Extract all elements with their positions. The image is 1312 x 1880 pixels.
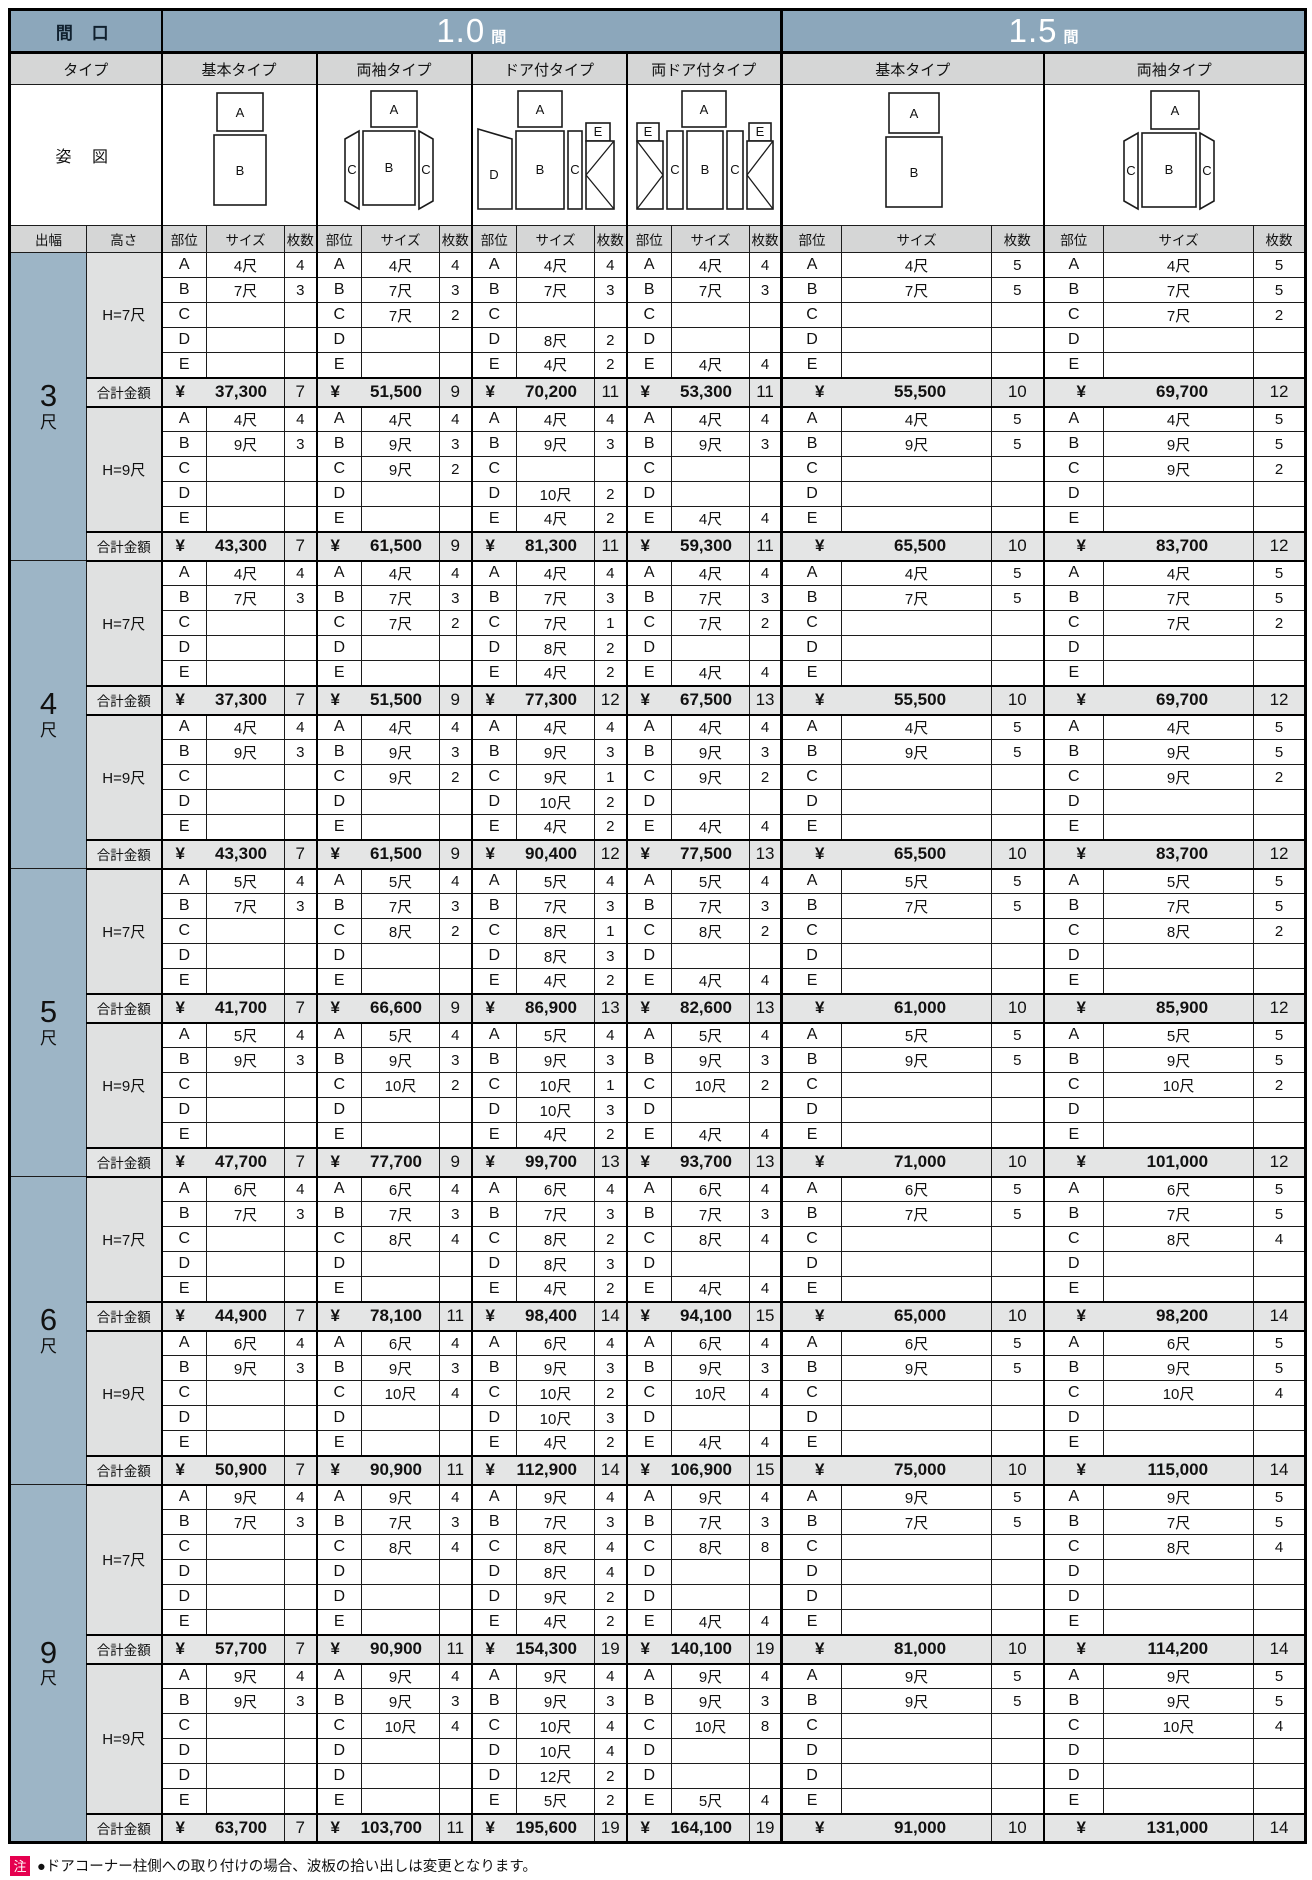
count-value-empty (750, 944, 782, 969)
count-value-empty (992, 611, 1044, 636)
count-value-empty (992, 661, 1044, 686)
svg-text:B: B (909, 165, 918, 180)
size-value: 9尺 (362, 1689, 440, 1714)
count-value: 4 (595, 1535, 627, 1560)
yen-sign: ¥ (486, 1152, 495, 1172)
size-value: 4尺 (517, 1610, 595, 1635)
part-letter: A (782, 1485, 842, 1510)
size-value-empty (1104, 1585, 1254, 1610)
total-amount-value: 90,900 (370, 1639, 422, 1659)
size-value-empty (842, 457, 992, 482)
part-letter: A (472, 1485, 517, 1510)
count-value-empty (285, 919, 317, 944)
part-letter: A (782, 561, 842, 586)
count-value: 3 (440, 1202, 472, 1227)
depth-value: 9 (11, 1637, 86, 1670)
part-letter: E (627, 1431, 672, 1456)
count-value: 4 (750, 661, 782, 686)
total-amount-value: 101,000 (1147, 1152, 1208, 1172)
part-letter: C (1044, 1381, 1104, 1406)
part-letter: C (782, 919, 842, 944)
part-letter: D (162, 1739, 207, 1764)
size-value-empty (362, 636, 440, 661)
part-letter: D (782, 944, 842, 969)
total-count: 11 (750, 378, 782, 407)
count-value-empty (992, 815, 1044, 840)
size-value-empty (672, 482, 750, 507)
yen-sign: ¥ (176, 1306, 185, 1326)
total-amount: ¥50,900 (162, 1456, 285, 1485)
total-amount-value: 65,500 (894, 536, 946, 556)
count-value: 2 (1254, 765, 1306, 790)
part-letter: B (162, 1356, 207, 1381)
total-amount-value: 55,500 (894, 690, 946, 710)
part-row: DDD8尺2DDD (10, 328, 1306, 353)
total-amount-value: 82,600 (680, 998, 732, 1018)
count-value: 4 (750, 1381, 782, 1406)
count-value: 5 (1254, 1689, 1306, 1714)
count-value: 3 (285, 1689, 317, 1714)
size-value: 6尺 (517, 1177, 595, 1202)
count-value: 5 (1254, 1664, 1306, 1689)
part-letter: A (627, 1664, 672, 1689)
yen-sign: ¥ (176, 1639, 185, 1659)
part-letter: C (627, 1535, 672, 1560)
size-value: 9尺 (207, 1356, 285, 1381)
yen-sign: ¥ (815, 1639, 824, 1659)
size-value: 8尺 (362, 1227, 440, 1252)
part-row: B9尺3B9尺3B9尺3B9尺3B9尺5B9尺5 (10, 1356, 1306, 1381)
count-value-empty (285, 507, 317, 532)
count-value-empty (1254, 507, 1306, 532)
count-value-empty (992, 328, 1044, 353)
part-letter: A (317, 561, 362, 586)
type-header-label: タイプ (10, 53, 162, 85)
svg-text:D: D (489, 167, 498, 182)
total-count: 19 (750, 1814, 782, 1843)
count-value: 3 (285, 1356, 317, 1381)
part-letter: E (782, 815, 842, 840)
total-amount: ¥37,300 (162, 378, 285, 407)
part-letter: E (317, 1277, 362, 1302)
count-value: 4 (595, 1560, 627, 1585)
part-letter: D (317, 482, 362, 507)
count-value-empty (750, 1252, 782, 1277)
part-letter: E (162, 353, 207, 378)
count-value-empty (992, 1252, 1044, 1277)
size-value: 6尺 (362, 1331, 440, 1356)
part-letter: E (162, 507, 207, 532)
size-value: 9尺 (672, 740, 750, 765)
total-count: 13 (750, 1148, 782, 1177)
size-value-empty (362, 969, 440, 994)
size-value: 9尺 (207, 1048, 285, 1073)
part-letter: A (782, 253, 842, 278)
count-value: 3 (285, 432, 317, 457)
count-value-empty (750, 303, 782, 328)
size-value-empty (842, 1764, 992, 1789)
part-letter: B (472, 1048, 517, 1073)
count-value-empty (1254, 1098, 1306, 1123)
part-letter: B (162, 740, 207, 765)
count-value: 1 (595, 1073, 627, 1098)
part-letter: B (317, 586, 362, 611)
count-value: 2 (1254, 457, 1306, 482)
size-value-empty (207, 1123, 285, 1148)
yen-sign: ¥ (176, 382, 185, 402)
part-row: B9尺3B9尺3B9尺3B9尺3B9尺5B9尺5 (10, 740, 1306, 765)
depth-unit: 尺 (11, 1669, 86, 1689)
count-value: 2 (595, 1431, 627, 1456)
size-value: 10尺 (1104, 1381, 1254, 1406)
size-value-empty (842, 1073, 992, 1098)
count-value: 3 (595, 1406, 627, 1431)
size-value: 10尺 (1104, 1714, 1254, 1739)
yen-sign: ¥ (331, 1639, 340, 1659)
count-value: 5 (992, 1485, 1044, 1510)
part-row: H=9尺A4尺4A4尺4A4尺4A4尺4A4尺5A4尺5 (10, 407, 1306, 432)
count-value: 2 (750, 765, 782, 790)
yen-sign: ¥ (641, 1818, 650, 1838)
part-letter: C (317, 457, 362, 482)
sugata-header-label: 姿 図 (10, 85, 162, 226)
size-value-empty (207, 790, 285, 815)
part-letter: D (782, 1406, 842, 1431)
size-value: 7尺 (672, 611, 750, 636)
part-row: CC9尺2CCCC9尺2 (10, 457, 1306, 482)
part-letter: A (162, 1485, 207, 1510)
size-value-empty (207, 1585, 285, 1610)
part-row: EEE5尺2E5尺4EE (10, 1789, 1306, 1814)
count-value-empty (1254, 1610, 1306, 1635)
count-value-empty (750, 1764, 782, 1789)
yen-sign: ¥ (331, 1460, 340, 1480)
count-value-empty (992, 1098, 1044, 1123)
size-value: 4尺 (517, 715, 595, 740)
part-letter: B (162, 894, 207, 919)
total-row: 合計金額¥43,3007¥61,5009¥90,40012¥77,50013¥6… (10, 840, 1306, 869)
count-value: 2 (1254, 611, 1306, 636)
yen-sign: ¥ (815, 998, 824, 1018)
part-letter: B (782, 1689, 842, 1714)
total-amount-value: 44,900 (215, 1306, 267, 1326)
size-value: 7尺 (1104, 586, 1254, 611)
height-label: H=9尺 (87, 407, 162, 532)
size-value: 8尺 (362, 919, 440, 944)
size-value: 7尺 (1104, 1202, 1254, 1227)
height-label: H=7尺 (87, 1485, 162, 1635)
part-letter: D (782, 1252, 842, 1277)
count-value-empty (992, 1073, 1044, 1098)
count-value-empty (750, 1406, 782, 1431)
yen-sign: ¥ (331, 1152, 340, 1172)
yen-sign: ¥ (176, 998, 185, 1018)
size-value: 7尺 (517, 611, 595, 636)
size-value: 4尺 (362, 561, 440, 586)
count-value: 3 (285, 1202, 317, 1227)
part-letter: A (162, 869, 207, 894)
total-amount-value: 65,500 (894, 844, 946, 864)
count-value: 4 (1254, 1381, 1306, 1406)
count-value-empty (440, 815, 472, 840)
size-value: 9尺 (1104, 740, 1254, 765)
depth-value: 4 (11, 688, 86, 721)
size-value-empty (1104, 1739, 1254, 1764)
part-letter: E (627, 1277, 672, 1302)
size-value-empty (207, 1252, 285, 1277)
size-value-empty (362, 1789, 440, 1814)
total-amount-value: 94,100 (680, 1306, 732, 1326)
count-value: 4 (285, 1485, 317, 1510)
part-letter: C (317, 1381, 362, 1406)
count-value: 2 (595, 790, 627, 815)
part-letter: A (627, 407, 672, 432)
size-value-empty (207, 1431, 285, 1456)
size-value: 8尺 (1104, 919, 1254, 944)
part-letter: B (1044, 1202, 1104, 1227)
total-amount-value: 67,500 (680, 690, 732, 710)
size-value: 7尺 (517, 278, 595, 303)
part-letter: C (317, 1535, 362, 1560)
part-letter: B (782, 278, 842, 303)
count-value-empty (285, 1098, 317, 1123)
count-value-empty (992, 1227, 1044, 1252)
count-value-empty (440, 1739, 472, 1764)
part-letter: A (162, 715, 207, 740)
part-letter: A (162, 1331, 207, 1356)
size-value: 5尺 (842, 1023, 992, 1048)
size-value: 9尺 (842, 1664, 992, 1689)
total-amount-value: 47,700 (215, 1152, 267, 1172)
size-value: 4尺 (672, 815, 750, 840)
count-column-header: 枚数 (750, 226, 782, 253)
count-value: 2 (595, 507, 627, 532)
count-value: 2 (440, 611, 472, 636)
total-count: 10 (992, 994, 1044, 1023)
count-value: 2 (750, 611, 782, 636)
count-value: 5 (992, 1177, 1044, 1202)
count-value: 4 (440, 1023, 472, 1048)
part-row: EEE4尺2E4尺4EE (10, 1431, 1306, 1456)
part-row: EEE4尺2E4尺4EE (10, 661, 1306, 686)
part-letter: D (627, 944, 672, 969)
part-letter: D (317, 1406, 362, 1431)
part-letter: A (472, 1177, 517, 1202)
yen-sign: ¥ (176, 690, 185, 710)
size-value: 5尺 (517, 869, 595, 894)
size-value: 8尺 (517, 636, 595, 661)
part-letter: D (782, 636, 842, 661)
size-value: 9尺 (1104, 1048, 1254, 1073)
count-value-empty (285, 1073, 317, 1098)
total-amount: ¥154,300 (472, 1635, 595, 1664)
count-value-empty (440, 1585, 472, 1610)
count-value: 4 (285, 869, 317, 894)
count-value-empty (285, 457, 317, 482)
double-door-type-diagram-icon: E C A B C E (629, 87, 779, 219)
part-letter: D (627, 482, 672, 507)
part-letter: E (472, 1431, 517, 1456)
count-value: 5 (992, 1331, 1044, 1356)
count-value-empty (285, 1535, 317, 1560)
part-row: DDD8尺3DDD (10, 1252, 1306, 1277)
part-letter: D (1044, 1739, 1104, 1764)
yen-sign: ¥ (641, 1639, 650, 1659)
size-value-empty (672, 790, 750, 815)
part-letter: E (472, 661, 517, 686)
total-amount: ¥77,300 (472, 686, 595, 715)
total-amount: ¥65,000 (782, 1302, 992, 1331)
svg-text:A: A (699, 102, 708, 117)
total-amount-value: 154,300 (516, 1639, 577, 1659)
total-amount-value: 50,900 (215, 1460, 267, 1480)
size-value: 10尺 (362, 1073, 440, 1098)
total-count: 9 (440, 378, 472, 407)
part-letter: A (317, 407, 362, 432)
size-value-empty (842, 1406, 992, 1431)
size-value-empty (842, 1381, 992, 1406)
count-value-empty (992, 636, 1044, 661)
total-amount-value: 66,600 (370, 998, 422, 1018)
total-amount: ¥78,100 (317, 1302, 440, 1331)
part-letter: E (162, 1789, 207, 1814)
size-value: 8尺 (362, 1535, 440, 1560)
size-value: 12尺 (517, 1764, 595, 1789)
count-value-empty (440, 636, 472, 661)
size-value-empty (842, 1714, 992, 1739)
type-door-1-0: ドア付タイプ (472, 53, 627, 85)
part-letter: C (1044, 457, 1104, 482)
part-letter: C (472, 919, 517, 944)
size-value-empty (207, 636, 285, 661)
part-letter: E (472, 1610, 517, 1635)
size-value-empty (207, 303, 285, 328)
total-amount-value: 69,700 (1156, 382, 1208, 402)
size-value-empty (517, 457, 595, 482)
total-count: 14 (595, 1456, 627, 1485)
part-letter: A (472, 561, 517, 586)
count-value-empty (285, 1764, 317, 1789)
size-value: 4尺 (672, 969, 750, 994)
part-letter: B (627, 1510, 672, 1535)
total-amount-value: 59,300 (680, 536, 732, 556)
part-row: DDD10尺3DDD (10, 1098, 1306, 1123)
part-letter: E (317, 815, 362, 840)
count-value-empty (285, 1277, 317, 1302)
part-letter: D (627, 328, 672, 353)
count-value: 4 (440, 1177, 472, 1202)
part-letter: E (627, 1123, 672, 1148)
part-letter: E (472, 1789, 517, 1814)
part-letter: E (472, 1123, 517, 1148)
total-amount-value: 112,900 (517, 1460, 578, 1480)
part-letter: B (627, 586, 672, 611)
size-value: 10尺 (672, 1381, 750, 1406)
total-amount-value: 77,700 (370, 1152, 422, 1172)
size-value: 9尺 (517, 1689, 595, 1714)
count-value-empty (992, 1560, 1044, 1585)
column-header-row: 出幅 高さ 部位 サイズ 枚数 部位 サイズ 枚数 部位 サイズ 枚数 部位 サ… (10, 226, 1306, 253)
size-value: 10尺 (517, 790, 595, 815)
total-amount-value: 37,300 (215, 382, 267, 402)
count-value-empty (992, 1764, 1044, 1789)
size-value-empty (207, 1098, 285, 1123)
size-value: 8尺 (517, 1535, 595, 1560)
total-count: 14 (1254, 1456, 1306, 1485)
count-value-empty (440, 482, 472, 507)
size-value-empty (842, 815, 992, 840)
size-value: 7尺 (207, 1202, 285, 1227)
part-letter: B (162, 586, 207, 611)
total-amount: ¥53,300 (627, 378, 750, 407)
size-value: 7尺 (362, 278, 440, 303)
count-value-empty (285, 944, 317, 969)
total-count: 7 (285, 686, 317, 715)
count-value: 1 (595, 919, 627, 944)
size-value-empty (207, 661, 285, 686)
part-letter: C (162, 919, 207, 944)
count-value-empty (285, 661, 317, 686)
size-value: 6尺 (517, 1331, 595, 1356)
size-value-empty (842, 328, 992, 353)
yen-sign: ¥ (176, 844, 185, 864)
total-count: 10 (992, 840, 1044, 869)
size-value-empty (1104, 1560, 1254, 1585)
size-value: 9尺 (842, 1356, 992, 1381)
count-value: 4 (440, 1714, 472, 1739)
part-letter: A (317, 1331, 362, 1356)
part-letter: A (1044, 1664, 1104, 1689)
size-value-empty (842, 919, 992, 944)
total-row: 合計金額¥63,7007¥103,70011¥195,60019¥164,100… (10, 1814, 1306, 1843)
part-letter: E (162, 1431, 207, 1456)
count-value: 3 (285, 1510, 317, 1535)
total-count: 9 (440, 1148, 472, 1177)
count-value-empty (992, 1277, 1044, 1302)
size-value-empty (1104, 1123, 1254, 1148)
size-value: 9尺 (842, 740, 992, 765)
count-value: 2 (595, 969, 627, 994)
count-value: 8 (750, 1714, 782, 1739)
total-amount: ¥69,700 (1044, 378, 1254, 407)
count-value: 5 (992, 1356, 1044, 1381)
sleeves-type-diagram-icon: A C B C (319, 87, 469, 219)
depth-label: 3尺 (10, 253, 87, 561)
size-value: 7尺 (1104, 894, 1254, 919)
size-value: 7尺 (672, 1510, 750, 1535)
count-value: 5 (992, 561, 1044, 586)
size-value: 9尺 (842, 1485, 992, 1510)
size-value: 9尺 (1104, 432, 1254, 457)
size-value-empty (1104, 1098, 1254, 1123)
part-letter: E (317, 661, 362, 686)
size-value: 6尺 (207, 1331, 285, 1356)
part-letter: C (1044, 1714, 1104, 1739)
size-value: 9尺 (517, 1664, 595, 1689)
count-value: 3 (440, 432, 472, 457)
part-letter: E (627, 815, 672, 840)
total-amount: ¥61,500 (317, 840, 440, 869)
part-letter: A (627, 715, 672, 740)
size-value-empty (207, 1739, 285, 1764)
part-column-header: 部位 (472, 226, 517, 253)
total-amount: ¥67,500 (627, 686, 750, 715)
size-value-empty (362, 661, 440, 686)
count-value: 4 (595, 869, 627, 894)
count-value: 5 (1254, 278, 1306, 303)
part-letter: D (162, 1252, 207, 1277)
total-count: 11 (440, 1814, 472, 1843)
